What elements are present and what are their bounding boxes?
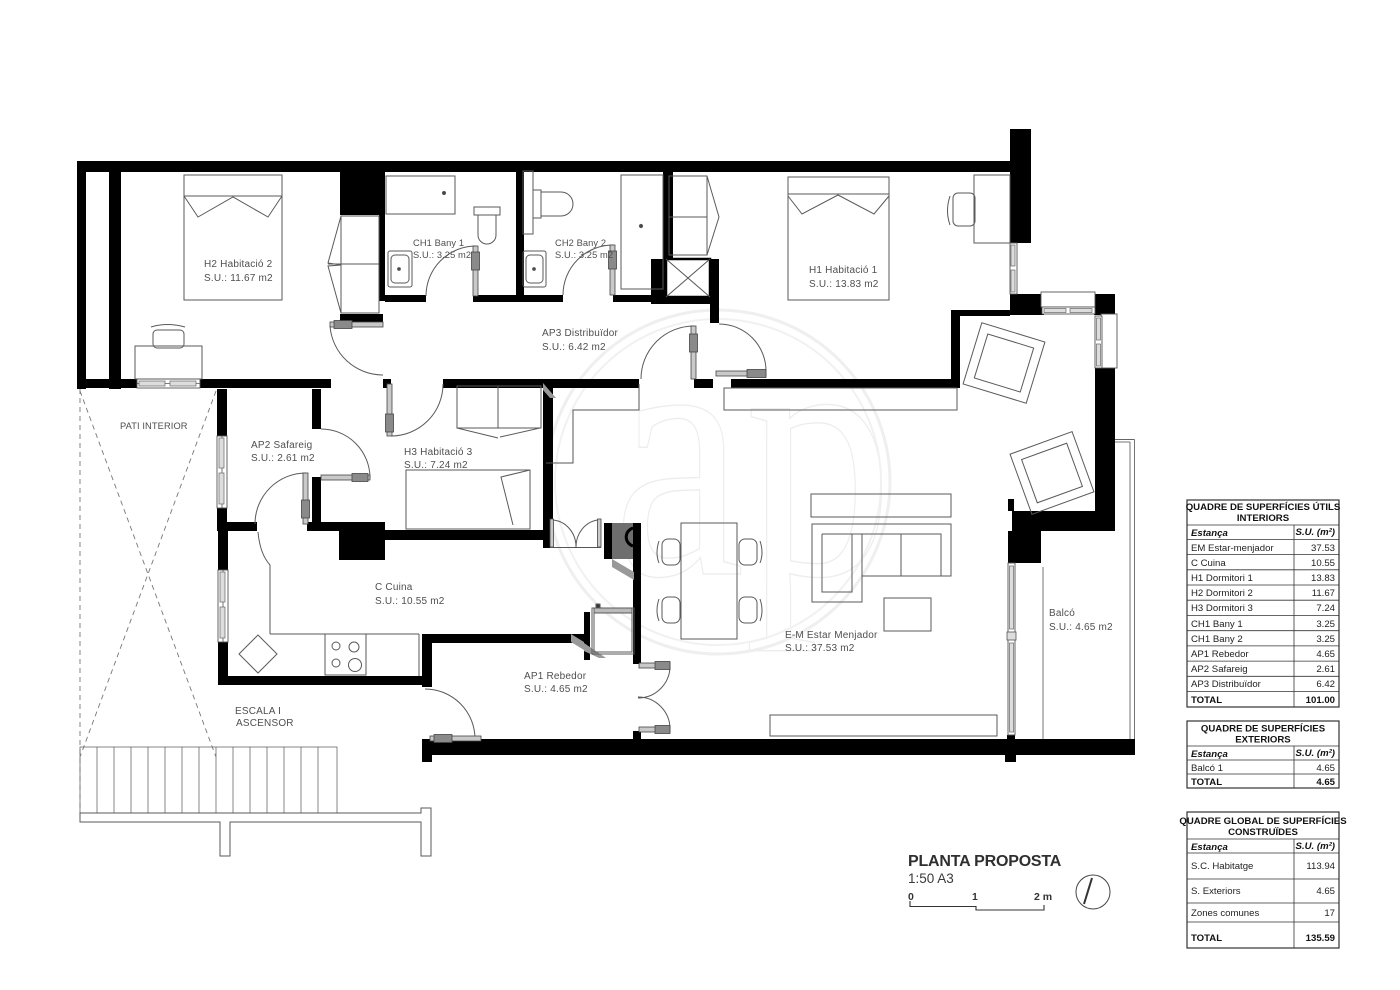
svg-text:QUADRE GLOBAL DE SUPERFÍCIES: QUADRE GLOBAL DE SUPERFÍCIES [1179, 815, 1347, 827]
svg-text:AP2 Safareig: AP2 Safareig [251, 440, 312, 451]
svg-text:S.U. (m²): S.U. (m²) [1296, 748, 1335, 759]
svg-text:13.83: 13.83 [1311, 573, 1335, 584]
svg-text:C Cuina: C Cuina [375, 582, 413, 593]
svg-text:S.U. (m²): S.U. (m²) [1296, 527, 1335, 538]
svg-text:Estança: Estança [1191, 749, 1228, 760]
svg-text:TOTAL: TOTAL [1191, 777, 1222, 788]
svg-text:ASCENSOR: ASCENSOR [236, 718, 294, 729]
svg-text:PLANTA PROPOSTA: PLANTA PROPOSTA [908, 853, 1062, 870]
svg-text:CH1 Bany 2: CH1 Bany 2 [1191, 634, 1243, 645]
svg-text:S.U.: 13.83 m2: S.U.: 13.83 m2 [809, 279, 879, 290]
svg-text:H2 Dormitori 2: H2 Dormitori 2 [1191, 588, 1253, 599]
svg-text:S.U.: 10.55 m2: S.U.: 10.55 m2 [375, 596, 445, 607]
svg-text:17: 17 [1324, 908, 1335, 919]
svg-text:E-M Estar Menjador: E-M Estar Menjador [785, 630, 878, 641]
svg-text:CH2 Bany 2: CH2 Bany 2 [555, 238, 606, 248]
svg-text:QUADRE DE SUPERFÍCIES ÚTILS: QUADRE DE SUPERFÍCIES ÚTILS [1186, 501, 1341, 513]
svg-text:4.65: 4.65 [1316, 649, 1335, 660]
svg-text:2 m: 2 m [1034, 891, 1052, 903]
svg-text:S.U.: 6.42 m2: S.U.: 6.42 m2 [542, 342, 606, 353]
svg-text:4.65: 4.65 [1316, 763, 1335, 774]
svg-text:H1 Dormitori 1: H1 Dormitori 1 [1191, 573, 1253, 584]
svg-text:0: 0 [908, 891, 914, 903]
svg-text:3.25: 3.25 [1316, 634, 1335, 645]
svg-text:AP3 Distribuïdor: AP3 Distribuïdor [542, 328, 618, 339]
svg-text:2.61: 2.61 [1316, 664, 1335, 675]
svg-text:S.U.: 3.25 m2: S.U.: 3.25 m2 [413, 250, 471, 260]
svg-text:CH1 Bany 1: CH1 Bany 1 [413, 238, 464, 248]
svg-text:Estança: Estança [1191, 528, 1228, 539]
svg-text:S.U. (m²): S.U. (m²) [1296, 841, 1335, 852]
svg-text:TOTAL: TOTAL [1191, 933, 1222, 944]
svg-text:S.U.: 3.25 m2: S.U.: 3.25 m2 [555, 250, 613, 260]
svg-text:H3 Dormitori 3: H3 Dormitori 3 [1191, 603, 1253, 614]
svg-text:S. Exteriors: S. Exteriors [1191, 886, 1241, 897]
svg-text:10.55: 10.55 [1311, 558, 1335, 569]
svg-text:Balcó: Balcó [1049, 608, 1075, 619]
svg-text:AP3 Distribuïdor: AP3 Distribuïdor [1191, 679, 1262, 690]
svg-text:S.U.: 4.65 m2: S.U.: 4.65 m2 [524, 684, 588, 695]
svg-text:EM Estar-menjador: EM Estar-menjador [1191, 543, 1274, 554]
svg-text:CONSTRUÏDES: CONSTRUÏDES [1228, 827, 1298, 838]
svg-text:QUADRE DE SUPERFÍCIES: QUADRE DE SUPERFÍCIES [1201, 723, 1326, 735]
svg-text:ESCALA I: ESCALA I [235, 706, 281, 717]
svg-text:1: 1 [972, 891, 978, 903]
svg-text:S.U.: 7.24 m2: S.U.: 7.24 m2 [404, 460, 468, 471]
svg-text:4.65: 4.65 [1316, 777, 1335, 788]
svg-text:37.53: 37.53 [1311, 543, 1335, 554]
svg-text:CH1 Bany 1: CH1 Bany 1 [1191, 619, 1243, 630]
svg-text:3.25: 3.25 [1316, 619, 1335, 630]
svg-text:101.00: 101.00 [1306, 695, 1335, 706]
svg-text:Zones comunes: Zones comunes [1191, 908, 1259, 919]
svg-text:1:50 A3: 1:50 A3 [908, 871, 954, 886]
svg-text:S.U.: 11.67 m2: S.U.: 11.67 m2 [204, 273, 273, 284]
svg-text:AP1 Rebedor: AP1 Rebedor [1191, 649, 1249, 660]
svg-text:INTERIORS: INTERIORS [1237, 513, 1290, 524]
svg-text:S.U.: 2.61 m2: S.U.: 2.61 m2 [251, 453, 315, 464]
svg-text:H3 Habitació 3: H3 Habitació 3 [404, 447, 473, 458]
svg-text:ap: ap [613, 253, 893, 653]
svg-text:Balcó 1: Balcó 1 [1191, 763, 1223, 774]
svg-text:AP1 Rebedor: AP1 Rebedor [524, 671, 587, 682]
svg-text:6.42: 6.42 [1316, 679, 1335, 690]
svg-text:H1 Habitació 1: H1 Habitació 1 [809, 265, 878, 276]
svg-text:S.C. Habitatge: S.C. Habitatge [1191, 861, 1253, 872]
svg-text:113.94: 113.94 [1306, 861, 1335, 872]
svg-text:PATI INTERIOR: PATI INTERIOR [120, 421, 188, 431]
svg-text:AP2 Safareig: AP2 Safareig [1191, 664, 1248, 675]
svg-text:11.67: 11.67 [1312, 588, 1335, 599]
svg-text:Estança: Estança [1191, 842, 1228, 853]
svg-text:EXTERIORS: EXTERIORS [1235, 735, 1291, 746]
svg-text:C Cuina: C Cuina [1191, 558, 1226, 569]
svg-text:H2 Habitació 2: H2 Habitació 2 [204, 259, 273, 270]
svg-text:TOTAL: TOTAL [1191, 695, 1222, 706]
svg-text:7.24: 7.24 [1316, 603, 1335, 614]
svg-text:S.U.: 37.53 m2: S.U.: 37.53 m2 [785, 643, 855, 654]
svg-text:135.59: 135.59 [1306, 933, 1335, 944]
svg-text:4.65: 4.65 [1316, 886, 1335, 897]
svg-text:S.U.: 4.65 m2: S.U.: 4.65 m2 [1049, 622, 1113, 633]
